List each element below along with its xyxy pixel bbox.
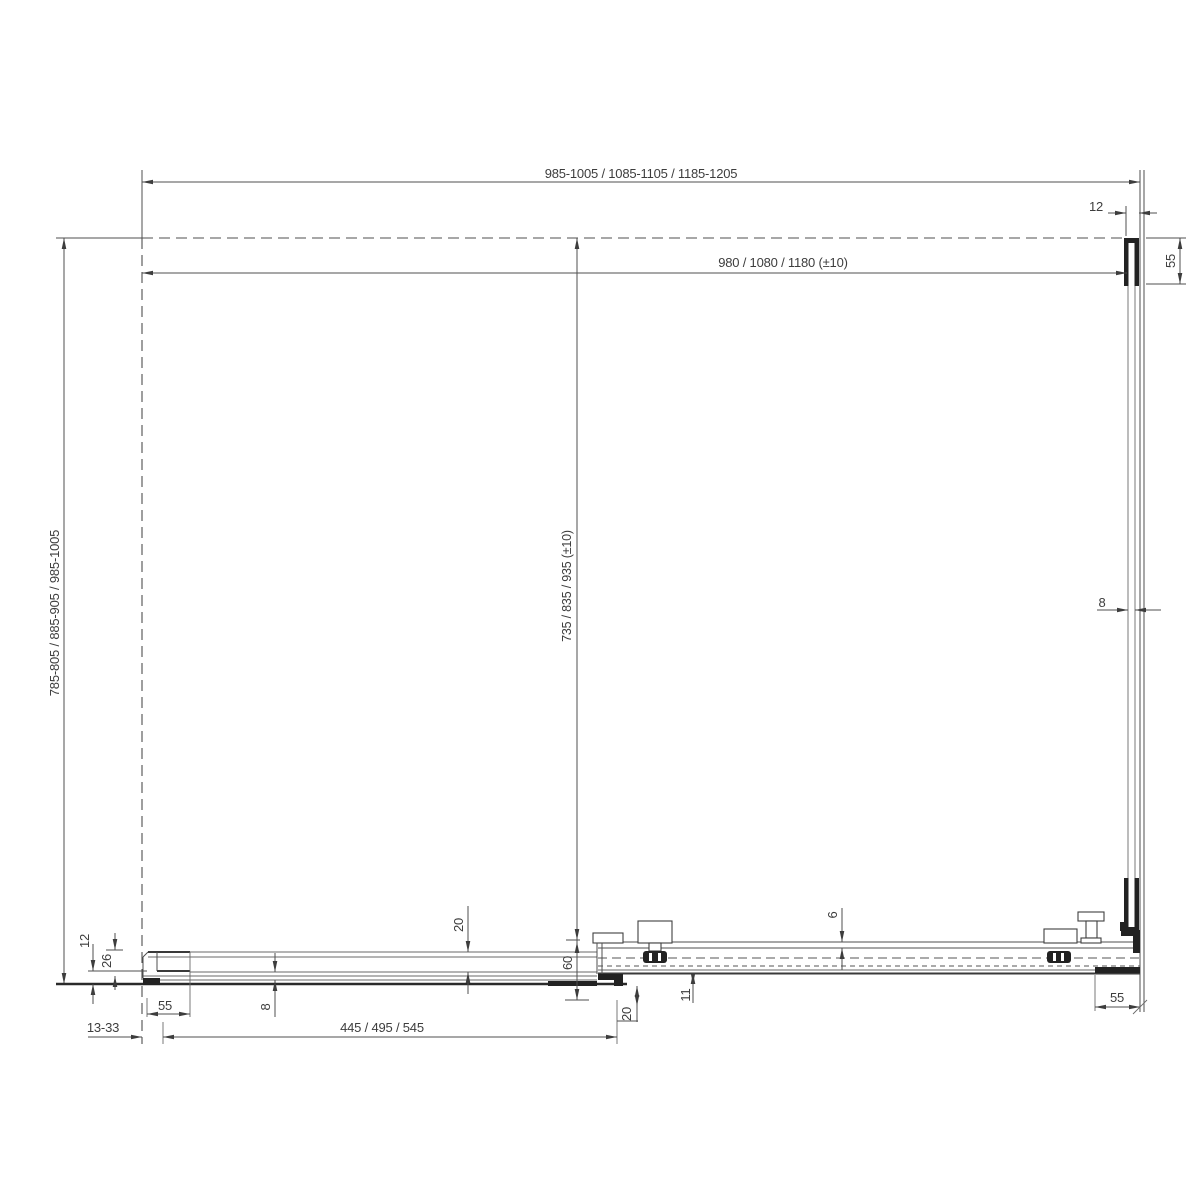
top-wall-profile-right-bar (1135, 243, 1140, 286)
dim-overall-width: 985-1005 / 1085-1105 / 1185-1205 (142, 166, 1140, 238)
dim-center-offset-60-label: 60 (560, 956, 575, 970)
roller-slot (1053, 953, 1056, 961)
dim-top-wall-profile: 55 (1146, 238, 1186, 284)
door-left-carriage-block (638, 921, 672, 943)
dim-inner-depth-label: 735 / 835 / 935 (±10) (560, 530, 574, 642)
dim-rail-top-6: 6 (825, 908, 844, 970)
door-right-hanger-stem (1086, 921, 1097, 938)
dim-inner-depth: 735 / 835 / 935 (±10) (560, 238, 580, 940)
dim-wall-adjustment-label: 13-33 (87, 1020, 119, 1035)
wall-profile-foot (143, 978, 160, 985)
door-left-roller (643, 951, 667, 963)
corner-bracket-top (1121, 930, 1140, 936)
roller-slot (1061, 953, 1064, 961)
door-right-roller (1047, 951, 1071, 963)
dim-overall-depth-label: 785-805 / 885-905 / 985-1005 (47, 530, 62, 696)
dim-rail-offset-11: 11 (678, 973, 695, 1003)
dim-side-glass-thickness: 8 (1097, 595, 1161, 612)
dim-center-offset-60: 60 (560, 940, 589, 1000)
dim-overall-width-label: 985-1005 / 1085-1105 / 1185-1205 (545, 166, 738, 181)
door-bottom-bracket (598, 974, 623, 980)
dim-bracket-offset-20-label: 20 (619, 1007, 634, 1021)
fixed-glass-edge-block (548, 981, 597, 986)
dim-left-wall-profile-55-label: 55 (158, 998, 172, 1013)
technical-drawing-page: 985-1005 / 1085-1105 / 1185-1205 980 / 1… (0, 0, 1200, 1200)
dim-left-offset-26-label: 26 (99, 954, 114, 968)
door-left-roller-stem (649, 943, 661, 951)
dim-door-glass-width-label: 445 / 495 / 545 (340, 1020, 424, 1035)
corner-glass-end-cap (1120, 922, 1125, 931)
tray-reference-lines (56, 238, 1124, 1044)
dim-overall-depth: 785-805 / 885-905 / 985-1005 (47, 238, 80, 984)
dim-top-wall-profile-label: 55 (1163, 254, 1178, 268)
dim-left-offset-12-label: 12 (77, 934, 92, 948)
dim-glass-inset-20: 20 (451, 906, 470, 994)
roller-slot (658, 953, 661, 961)
dim-bottom-guide-55: 55 (1095, 975, 1147, 1014)
dim-bottom-guide-55-label: 55 (1110, 990, 1124, 1005)
door-left-cap (593, 933, 623, 943)
bottom-guide-block (1095, 967, 1140, 973)
dim-rail-top-6-label: 6 (825, 911, 840, 918)
dim-rail-offset-11-label: 11 (678, 988, 693, 1001)
dim-top-profile-gap: 12 (1089, 199, 1157, 236)
dim-fixed-glass-thickness-label: 8 (258, 1003, 273, 1010)
dim-glass-inset-20-label: 20 (451, 918, 466, 932)
dim-side-glass-thickness-label: 8 (1098, 595, 1105, 610)
dim-inner-width-label: 980 / 1080 / 1180 (±10) (718, 255, 848, 270)
door-right-hanger-plate (1078, 912, 1104, 921)
dim-inner-width: 980 / 1080 / 1180 (±10) (142, 255, 1127, 275)
right-wall-lines (1140, 170, 1144, 1012)
dim-bracket-offset-20: 20 (617, 986, 639, 1022)
bottom-wall-profile-right-bar (1135, 878, 1140, 927)
dim-top-profile-gap-label: 12 (1089, 199, 1103, 214)
top-wall-profile-left-bar (1124, 238, 1129, 286)
sliding-door-rail (593, 912, 1140, 986)
door-right-hanger-foot (1081, 938, 1101, 943)
shower-enclosure-plan-drawing: 985-1005 / 1085-1105 / 1185-1205 980 / 1… (0, 0, 1200, 1200)
corner-bracket-side (1133, 936, 1140, 953)
dim-left-offset-26: 26 (99, 933, 123, 990)
side-glass-panel (1124, 238, 1139, 932)
roller-slot (649, 953, 652, 961)
door-bottom-bracket-foot (614, 980, 623, 986)
door-right-carriage-block (1044, 929, 1077, 943)
